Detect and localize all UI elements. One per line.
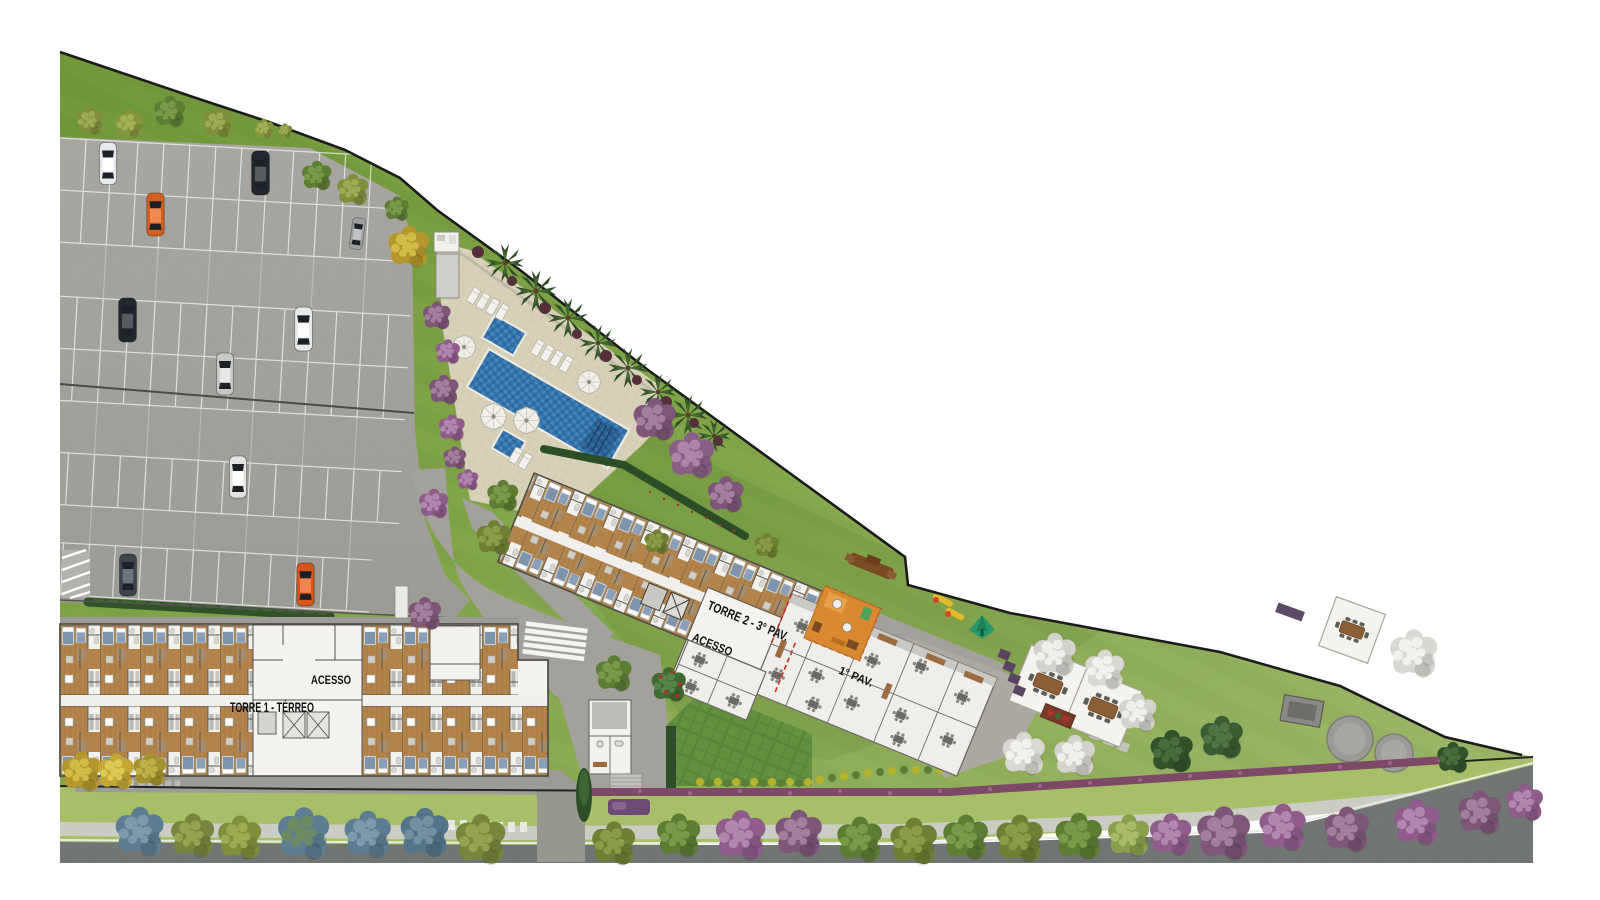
svg-text:TORRE 1 - TÉRREO: TORRE 1 - TÉRREO bbox=[230, 699, 314, 715]
svg-text:ACESSO: ACESSO bbox=[311, 673, 351, 687]
